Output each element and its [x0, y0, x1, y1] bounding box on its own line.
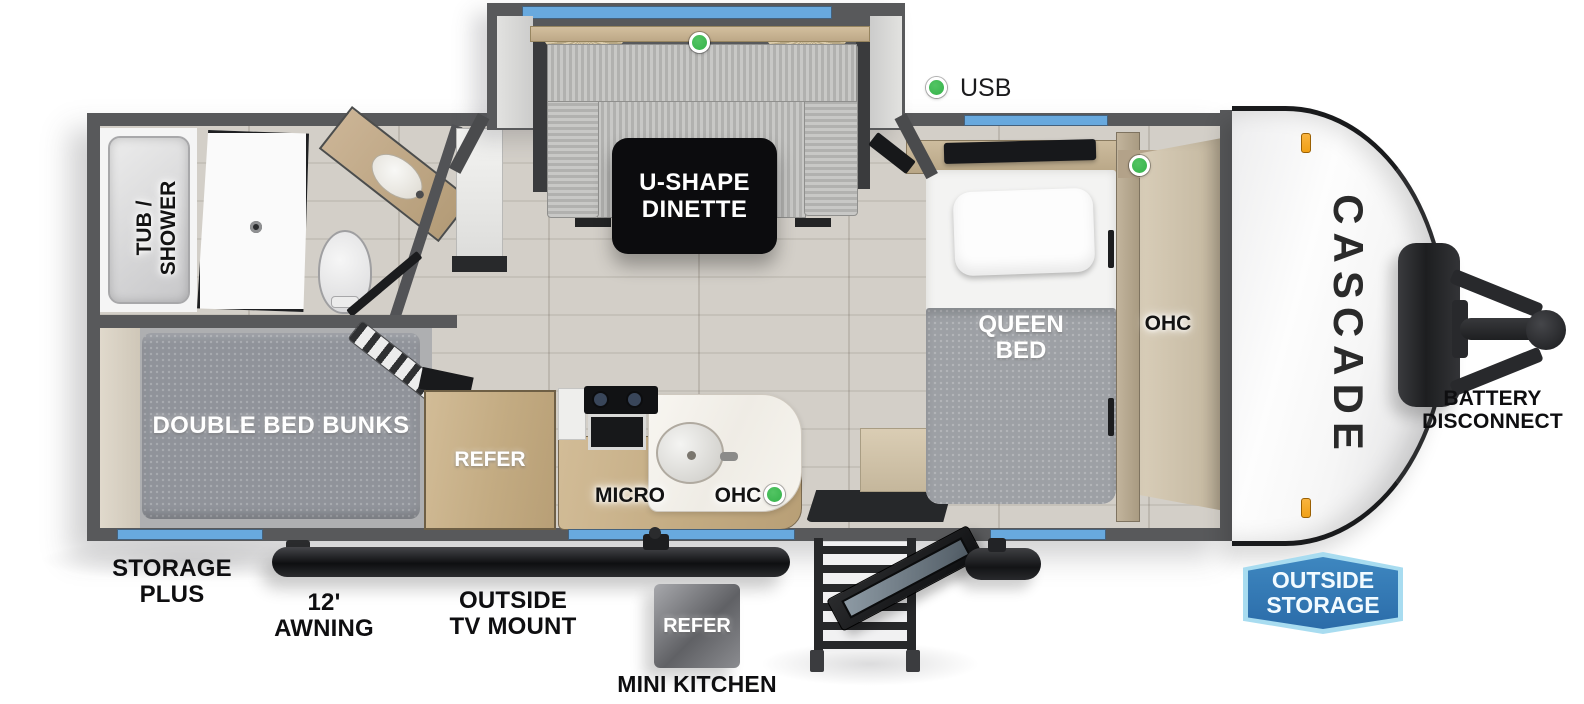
usb-marker-dinette — [689, 32, 710, 53]
awning-roller — [272, 547, 790, 577]
kitchen-sink — [656, 422, 724, 484]
floorplan-canvas: TUB / SHOWER DOUBLE BED BUNKS REFER MICR… — [0, 0, 1584, 704]
sink-faucet — [720, 452, 738, 461]
grab-handle — [965, 548, 1041, 580]
step-rung — [823, 546, 907, 554]
dinette-label-line2: DINETTE — [642, 196, 747, 223]
brand-logo: CASCADE — [1322, 176, 1374, 476]
outside-storage-line2: STORAGE — [1266, 593, 1379, 618]
refer-label: REFER — [454, 448, 525, 472]
tub-shower-label-line2: SHOWER — [157, 181, 181, 276]
shower-drain-icon — [250, 221, 262, 233]
slide-wall-left — [497, 16, 533, 128]
hitch-coupler — [1526, 310, 1566, 350]
usb-marker-legend — [926, 77, 947, 98]
bench-foot — [575, 218, 611, 227]
handle-bracket — [988, 538, 1006, 552]
window-bedroom-top — [964, 115, 1108, 126]
wardrobe-handle-icon — [1108, 398, 1114, 436]
battery-disconnect-label: BATTERY DISCONNECT — [1415, 388, 1570, 433]
outside-storage-badge-inner: OUTSIDE STORAGE — [1248, 557, 1398, 629]
slide-wall-strip-left — [533, 34, 547, 192]
tv-mount-line1: OUTSIDE — [434, 588, 592, 614]
awning-label: 12' AWNING — [256, 590, 392, 642]
battery-disconnect-line2: DISCONNECT — [1415, 411, 1570, 434]
queen-bed-label: QUEEN BED — [946, 312, 1096, 364]
step-rail — [814, 538, 823, 656]
window-bunk — [117, 529, 263, 540]
bunkroom-divider-wall — [97, 315, 457, 328]
usb-marker-kitchen — [764, 484, 785, 505]
storage-plus-line1: STORAGE — [94, 556, 250, 582]
tub-shower-label-line1: TUB / — [133, 201, 157, 256]
ohc-label-bedroom: OHC — [1136, 312, 1200, 336]
queen-bed-label-line2: BED — [946, 338, 1096, 364]
stove-burner-icon — [626, 391, 643, 408]
storage-plus-line2: PLUS — [94, 582, 250, 608]
clearance-light-icon — [1301, 133, 1311, 153]
dinette-label-line1: U-SHAPE — [639, 169, 750, 196]
stove-burner-icon — [592, 391, 609, 408]
bench-foot — [795, 218, 831, 227]
backsplash-panel — [558, 388, 586, 440]
battery-disconnect-line1: BATTERY — [1415, 388, 1570, 411]
ohc-label-kitchen: OHC — [704, 484, 772, 508]
step-foot — [810, 650, 824, 672]
storage-plus-label: STORAGE PLUS — [94, 556, 250, 608]
usb-marker-bedroom — [1129, 155, 1150, 176]
stove-cooktop — [584, 386, 658, 414]
window-bedroom-bottom — [990, 529, 1106, 540]
tv-mount-label: OUTSIDE TV MOUNT — [434, 588, 592, 640]
linen-cabinet-base — [452, 256, 507, 272]
micro-label: MICRO — [588, 484, 672, 508]
bed-pillow — [953, 188, 1096, 277]
tv-mount-line2: TV MOUNT — [434, 614, 592, 640]
oven-window — [588, 414, 646, 450]
mini-kitchen-label: MINI KITCHEN — [600, 672, 794, 697]
sink-drain-icon — [687, 451, 696, 460]
step-rung — [823, 622, 907, 630]
step-rung — [823, 641, 907, 649]
step-foot — [906, 650, 920, 672]
refrigerator-cabinet: REFER — [424, 390, 556, 530]
outside-storage-badge: OUTSIDE STORAGE — [1243, 552, 1403, 634]
usb-legend-label: USB — [960, 74, 1030, 103]
outside-storage-line1: OUTSIDE — [1272, 568, 1374, 593]
queen-bed-label-line1: QUEEN — [946, 312, 1096, 338]
double-bed-bunks-label: DOUBLE BED BUNKS — [152, 412, 409, 440]
clearance-light-icon — [1301, 498, 1311, 518]
awning-knob-icon — [649, 527, 661, 539]
tub-shower-label: TUB / SHOWER — [97, 168, 217, 288]
mini-kitchen-refer-label: REFER — [663, 615, 731, 638]
window-slide — [522, 6, 832, 19]
wardrobe-handle-icon — [1108, 230, 1114, 268]
slide-wall-right — [870, 16, 902, 128]
window-kitchen — [568, 529, 795, 540]
bunk-headboard-panel — [100, 328, 140, 528]
mini-kitchen-refer-box: REFER — [654, 584, 740, 668]
dinette-table: U-SHAPE DINETTE — [612, 138, 777, 254]
bedroom-tv — [944, 139, 1096, 164]
slide-wall-strip-right — [856, 34, 870, 189]
